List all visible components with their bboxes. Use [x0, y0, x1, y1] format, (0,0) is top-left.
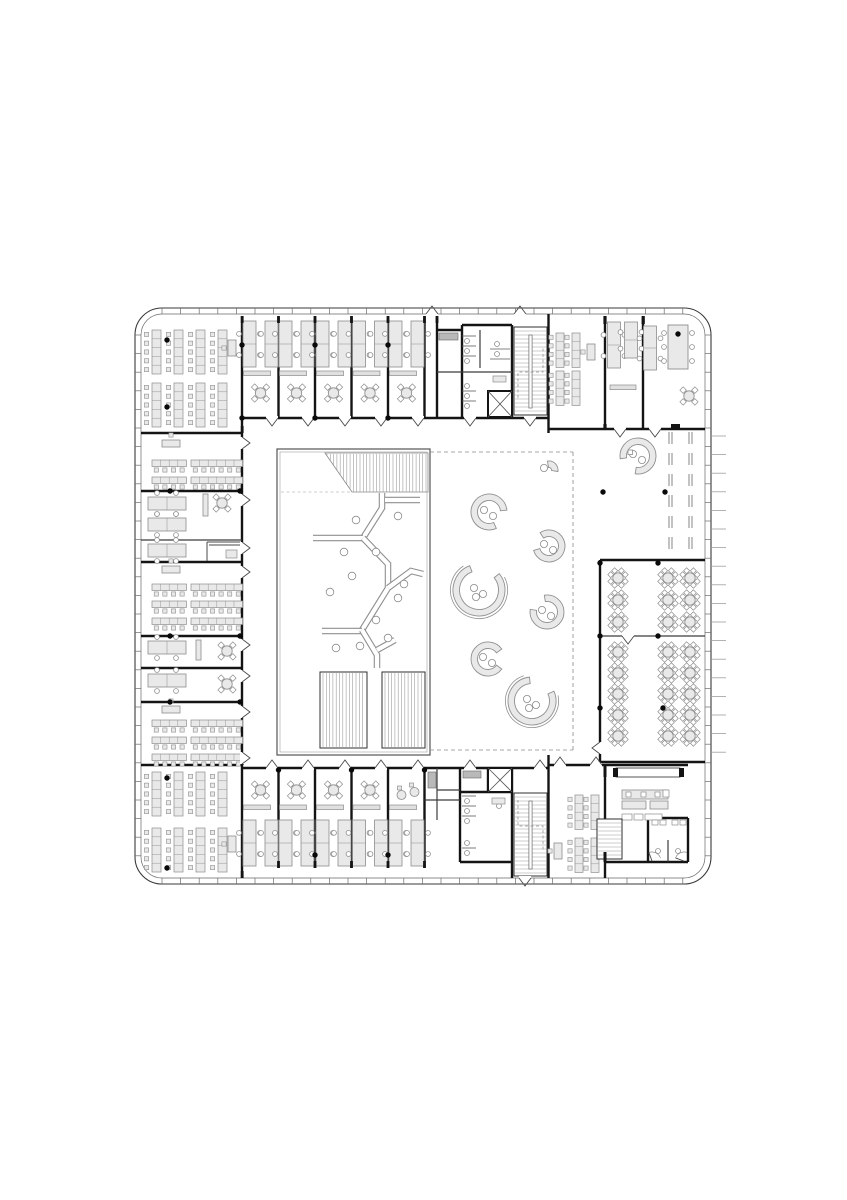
chair — [210, 332, 214, 336]
desk-cluster — [148, 538, 186, 564]
table-strip — [152, 772, 161, 816]
chair — [690, 331, 695, 336]
round-table — [658, 590, 678, 610]
stool — [549, 546, 556, 553]
chair — [202, 728, 206, 732]
chair — [210, 792, 214, 796]
sofa-ring — [534, 530, 565, 562]
chair — [584, 814, 588, 818]
chair — [163, 609, 167, 613]
chair — [193, 745, 197, 749]
desk-cluster — [237, 820, 263, 866]
chair — [188, 421, 192, 425]
chair — [163, 728, 167, 732]
junction-dot — [167, 699, 172, 704]
table-strip — [218, 772, 227, 816]
chair — [202, 762, 206, 766]
round-table — [658, 684, 678, 704]
cabinet — [203, 494, 208, 516]
chair — [144, 783, 148, 787]
door-opening — [240, 437, 250, 449]
chair — [210, 857, 214, 861]
junction-dot — [655, 560, 660, 565]
chair — [171, 468, 175, 472]
chair — [202, 485, 206, 489]
seminar-row — [191, 737, 243, 749]
sofa-ring — [508, 677, 556, 725]
chair — [568, 866, 572, 870]
chair — [144, 359, 148, 363]
chair — [236, 762, 240, 766]
round-table — [658, 568, 678, 588]
stool — [547, 612, 554, 619]
door-gap — [240, 494, 244, 506]
wall-end-cap — [387, 316, 390, 323]
stool — [356, 642, 364, 650]
round-table — [658, 642, 678, 662]
desk-cluster — [148, 668, 186, 694]
chair — [310, 830, 315, 835]
chair — [155, 656, 160, 661]
lectern — [581, 344, 595, 360]
round-table — [361, 384, 379, 402]
floor-plan-drawing — [0, 0, 847, 1200]
chair — [210, 592, 214, 596]
chair — [259, 830, 264, 835]
class-column — [210, 383, 227, 427]
stool — [523, 695, 530, 702]
chair — [690, 359, 695, 364]
round-table — [608, 642, 628, 662]
door-opening — [375, 416, 387, 426]
table-top — [663, 595, 673, 605]
chair — [144, 810, 148, 814]
chair — [155, 559, 160, 564]
junction-dot — [597, 633, 602, 638]
sofa-ring — [547, 461, 558, 472]
seminar-row — [152, 618, 186, 630]
chair — [565, 344, 569, 348]
table-strip — [196, 828, 205, 872]
chair — [549, 382, 553, 386]
chair — [584, 849, 588, 853]
table-top — [217, 498, 227, 508]
desk-cluster — [405, 321, 431, 367]
round-table — [287, 384, 305, 402]
chair — [180, 745, 184, 749]
chair — [144, 368, 148, 372]
chair — [426, 852, 431, 857]
chair — [210, 783, 214, 787]
junction-dot — [600, 489, 605, 494]
junction-dot — [167, 488, 172, 493]
stool — [525, 704, 532, 711]
wall-end-cap — [277, 316, 280, 323]
sideboard — [390, 805, 417, 810]
chair — [166, 368, 170, 372]
junction-dot — [422, 767, 427, 772]
chair — [565, 373, 569, 377]
door-opening — [266, 760, 278, 770]
round-table — [608, 726, 628, 746]
round-table — [608, 612, 628, 632]
wall-end-cap — [350, 861, 353, 868]
door-opening — [240, 639, 250, 651]
chair — [188, 783, 192, 787]
desk-cluster — [148, 635, 186, 661]
lectern-desk — [162, 566, 180, 573]
table-top — [365, 388, 375, 398]
utility-shelf — [428, 772, 436, 788]
table-top — [685, 617, 695, 627]
chair — [405, 331, 410, 336]
junction-dot — [164, 404, 169, 409]
table-top — [663, 617, 673, 627]
chair — [144, 332, 148, 336]
table-top — [663, 731, 673, 741]
chair — [584, 857, 588, 861]
chair — [368, 331, 373, 336]
chair — [236, 626, 240, 630]
class-column — [144, 828, 161, 872]
chair — [549, 399, 553, 403]
wall-end-cap — [314, 861, 317, 868]
chair — [568, 840, 572, 844]
chair — [202, 609, 206, 613]
door-gap — [240, 752, 244, 764]
chair — [166, 359, 170, 363]
wall-end-cap — [277, 861, 280, 868]
door-opening — [302, 416, 314, 426]
door-opening — [240, 494, 250, 506]
stool — [479, 590, 486, 597]
chair — [144, 830, 148, 834]
chair — [332, 830, 337, 835]
junction-dot — [597, 705, 602, 710]
class-column — [166, 330, 183, 374]
chair — [273, 852, 278, 857]
chair — [584, 866, 588, 870]
chair — [188, 394, 192, 398]
chair — [237, 852, 242, 857]
table-top — [328, 785, 338, 795]
door-gap — [426, 312, 438, 316]
chair — [202, 626, 206, 630]
small-box — [410, 783, 414, 787]
door-gap — [554, 763, 566, 767]
table-top — [613, 710, 623, 720]
round-table — [658, 612, 678, 632]
door-gap — [240, 706, 244, 718]
sideboard — [317, 805, 344, 810]
desk-cluster — [148, 512, 186, 538]
lectern — [548, 843, 562, 859]
chair — [163, 485, 167, 489]
chair — [601, 332, 606, 337]
table-strip — [218, 828, 227, 872]
chair — [618, 346, 623, 351]
chair — [144, 403, 148, 407]
wall-end-cap — [642, 316, 645, 324]
wall-end-cap — [314, 316, 317, 323]
chair — [662, 359, 667, 364]
seminar-row — [152, 601, 186, 613]
chair — [174, 559, 179, 564]
chair — [236, 609, 240, 613]
chair — [144, 385, 148, 389]
chair — [163, 468, 167, 472]
chair — [155, 668, 160, 673]
chair — [210, 810, 214, 814]
chair — [188, 866, 192, 870]
chair — [174, 656, 179, 661]
door-gap — [524, 416, 536, 420]
junction-dot — [597, 560, 602, 565]
class-column — [210, 330, 227, 374]
chair — [273, 353, 278, 358]
chair — [202, 745, 206, 749]
chair — [295, 331, 300, 336]
chair — [210, 745, 214, 749]
wc-sink — [652, 820, 658, 825]
chair — [169, 433, 173, 437]
round-table — [608, 684, 628, 704]
door-gap — [590, 763, 602, 767]
wc-sink-counter — [493, 376, 506, 382]
door-leaf — [676, 858, 684, 861]
stool — [488, 659, 495, 666]
table-top — [291, 785, 301, 795]
wc-sink — [660, 820, 666, 825]
wc-sink — [680, 820, 686, 825]
chair — [210, 359, 214, 363]
sideboard — [353, 371, 380, 376]
wc-fixture — [465, 359, 470, 364]
round-table — [608, 590, 628, 610]
door-gap — [240, 670, 244, 682]
door-opening — [649, 427, 661, 437]
round-table — [680, 684, 700, 704]
stool — [332, 644, 340, 652]
chair — [171, 485, 175, 489]
chair — [405, 830, 410, 835]
junction-dot — [312, 342, 317, 347]
chair — [171, 728, 175, 732]
class-column — [166, 383, 183, 427]
stool — [326, 588, 334, 596]
round-table — [324, 384, 342, 402]
round-table — [680, 705, 700, 725]
table-strip — [152, 330, 161, 374]
junction-dot — [349, 767, 354, 772]
chair — [180, 728, 184, 732]
chair — [548, 849, 552, 853]
chair — [346, 830, 351, 835]
classroom-top-left — [144, 330, 236, 427]
door-leaf — [649, 853, 652, 861]
chair — [568, 806, 572, 810]
door-gap — [534, 766, 546, 770]
class-column — [188, 828, 205, 872]
wc-sink-counter — [492, 798, 505, 804]
chair — [180, 485, 184, 489]
table-top — [255, 388, 265, 398]
junction-dot — [239, 415, 244, 420]
round-table — [680, 663, 700, 683]
zone-offices-top — [237, 321, 431, 402]
door-opening — [622, 634, 634, 644]
chair — [219, 609, 223, 613]
class-column — [144, 330, 161, 374]
round-table — [658, 663, 678, 683]
round-table — [361, 781, 379, 799]
junction-dot — [276, 767, 281, 772]
table-top — [685, 647, 695, 657]
door-opening — [302, 760, 314, 770]
door-opening — [524, 416, 536, 426]
wc-fixture — [465, 851, 470, 856]
chair — [166, 394, 170, 398]
wc-fixture — [465, 339, 470, 344]
chair — [155, 538, 160, 543]
door-gap — [240, 542, 244, 554]
lectern-desk — [554, 843, 562, 859]
chair — [658, 336, 663, 341]
chair — [171, 762, 175, 766]
table-top — [685, 668, 695, 678]
table-top — [365, 785, 375, 795]
chair — [188, 830, 192, 834]
chair — [637, 336, 642, 341]
lectern — [162, 433, 180, 447]
chair — [565, 390, 569, 394]
chair — [332, 331, 337, 336]
chair — [210, 728, 214, 732]
kitchen-counter — [650, 801, 668, 809]
wall-end-cap — [613, 768, 618, 777]
door-opening — [240, 670, 250, 682]
table-top — [613, 595, 623, 605]
stair — [320, 672, 367, 748]
junction-dot — [662, 489, 667, 494]
junction-dot — [239, 342, 244, 347]
door-gap — [614, 427, 626, 431]
junction-dot — [675, 331, 680, 336]
junction-dot — [164, 775, 169, 780]
junction-dot — [237, 699, 242, 704]
table-top — [328, 388, 338, 398]
junction-dot — [385, 852, 390, 857]
zone-offices-bottom — [237, 781, 431, 866]
chair — [193, 592, 197, 596]
chair — [210, 848, 214, 852]
chair — [188, 368, 192, 372]
zone-rooms-top-right — [601, 322, 698, 405]
chair — [166, 783, 170, 787]
round-table — [680, 612, 700, 632]
wc-fixture — [465, 809, 470, 814]
wc-fixture — [465, 349, 470, 354]
chair — [210, 341, 214, 345]
chair — [210, 468, 214, 472]
stair-outline — [320, 672, 367, 748]
junction-dot — [164, 337, 169, 342]
chair — [273, 331, 278, 336]
door-opening — [592, 742, 602, 754]
servery-counter — [616, 768, 680, 777]
stool — [472, 593, 479, 600]
chair — [154, 468, 158, 472]
stair — [514, 793, 547, 876]
round-table — [397, 384, 415, 402]
curved-sofa — [505, 676, 558, 728]
door-opening — [464, 416, 476, 426]
chair — [144, 792, 148, 796]
stool — [352, 516, 360, 524]
junction-dot — [237, 488, 242, 493]
door-gap — [339, 416, 351, 420]
chair — [584, 797, 588, 801]
seminar-room-left-0 — [152, 433, 243, 489]
seminar-row — [191, 720, 243, 732]
chair — [163, 592, 167, 596]
chair — [188, 341, 192, 345]
closet-fixture — [226, 550, 237, 558]
chair — [174, 635, 179, 640]
chair — [219, 745, 223, 749]
lectern-desk — [162, 706, 180, 713]
table-strip — [218, 383, 227, 427]
chair — [193, 468, 197, 472]
seminar-row — [191, 601, 243, 613]
chair — [180, 762, 184, 766]
seminar-room-left-1 — [152, 559, 243, 630]
chair — [426, 331, 431, 336]
door-gap — [240, 639, 244, 651]
curved-sofa — [450, 566, 507, 619]
chair — [166, 332, 170, 336]
chair — [332, 852, 337, 857]
chair — [210, 830, 214, 834]
stool — [394, 512, 402, 520]
seminar-row — [191, 460, 243, 472]
chair — [174, 491, 179, 496]
zone-gallery — [620, 432, 692, 558]
junction-dot — [385, 342, 390, 347]
chair — [202, 468, 206, 472]
junction-dot — [385, 415, 390, 420]
chair — [163, 745, 167, 749]
table-top — [613, 573, 623, 583]
chair — [662, 331, 667, 336]
chair — [210, 394, 214, 398]
coat-stand — [410, 788, 419, 797]
seminar-room-center-0 — [549, 333, 595, 405]
round-table — [213, 494, 231, 512]
door-opening — [554, 757, 566, 767]
sideboard — [244, 805, 271, 810]
chair — [237, 353, 242, 358]
chair — [154, 609, 158, 613]
seminar-row — [191, 477, 243, 489]
chair — [618, 330, 623, 335]
seminar-row — [191, 584, 243, 596]
junction-dot — [164, 865, 169, 870]
elevator — [488, 768, 512, 792]
table-strip — [174, 383, 183, 427]
wall-end-cap — [603, 424, 606, 429]
chair — [219, 485, 223, 489]
